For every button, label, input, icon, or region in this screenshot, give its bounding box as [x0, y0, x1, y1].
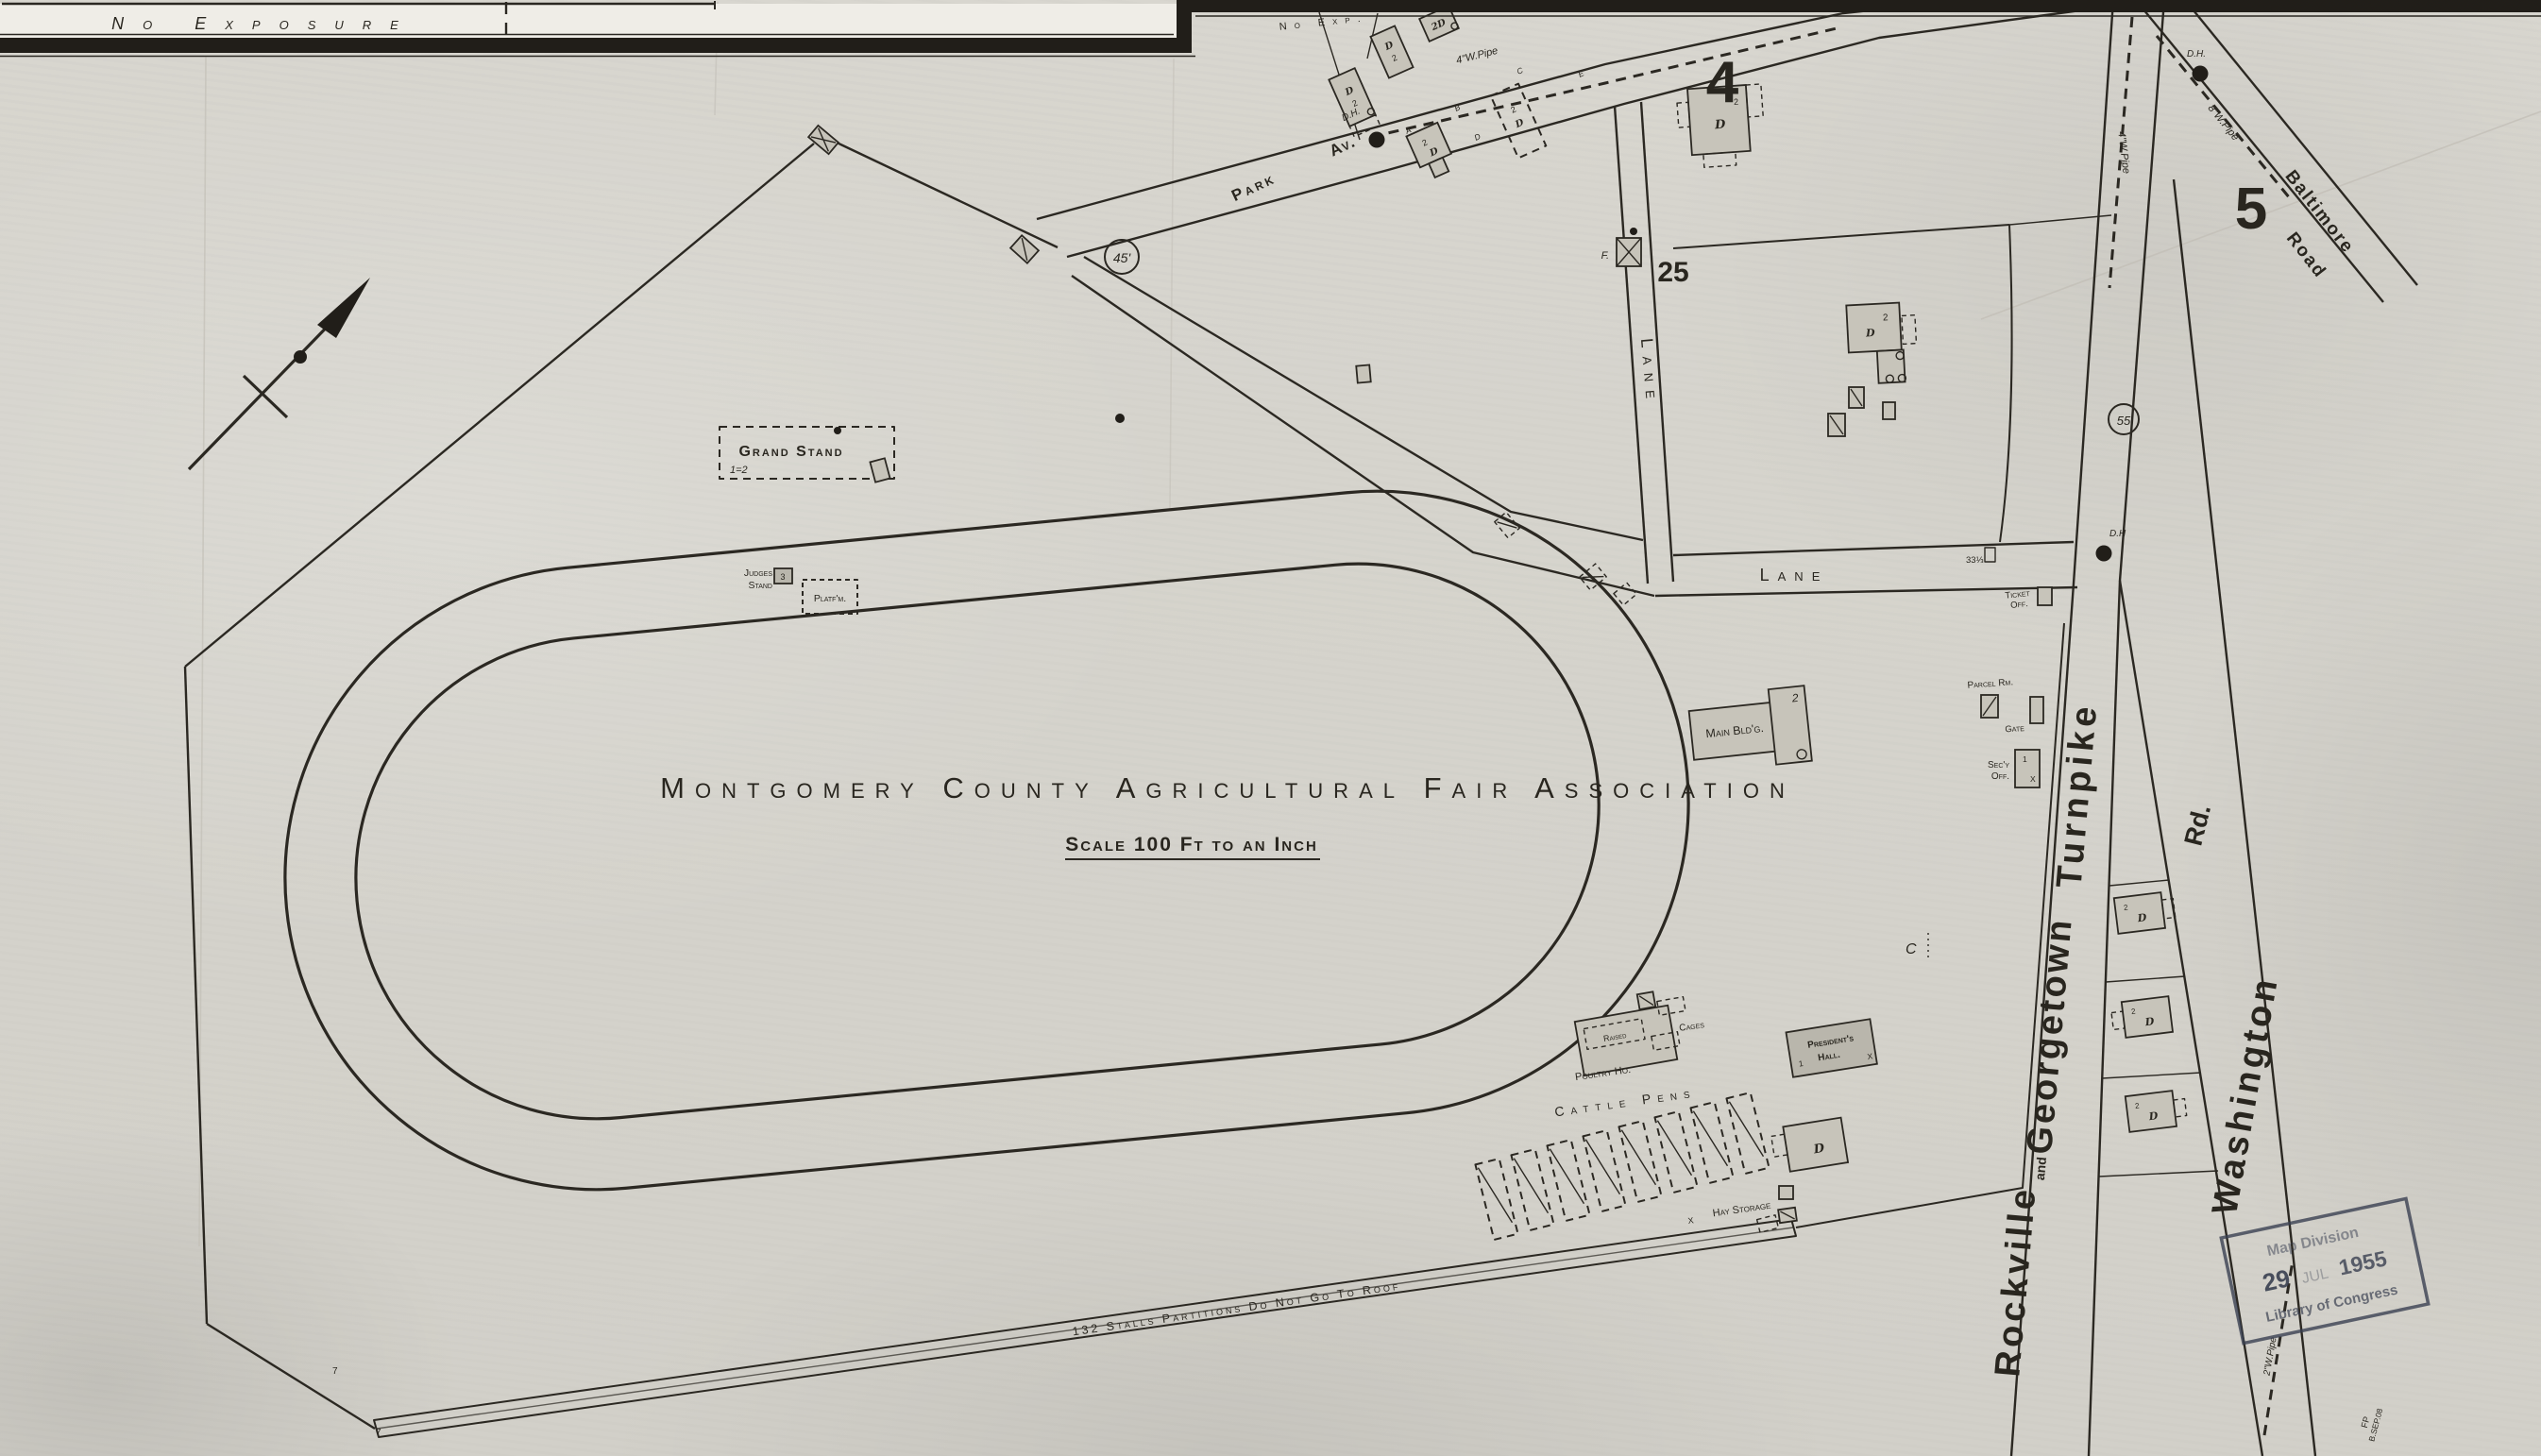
- stall-tick-7b: 7: [376, 1428, 381, 1438]
- street-label-park-av: Av.: [1327, 132, 1358, 160]
- main-building: 2 Main Bld'g.: [1687, 686, 1812, 773]
- entry-road-sheds: [1495, 512, 1636, 604]
- hay-storage-label: Hay Storage: [1712, 1200, 1771, 1220]
- library-stamp: Map Division 29 JUL 1955 Library of Cong…: [2221, 1198, 2428, 1343]
- park-av-south-edge: [1067, 6, 2115, 257]
- fence-apex-shed: [808, 126, 839, 154]
- dh-label-lane: D.H: [2109, 529, 2126, 539]
- f-building: F.: [1601, 228, 1641, 266]
- hydrant-dot-lane: [2096, 546, 2112, 562]
- judges-stand: Judges Stand 3: [744, 567, 792, 591]
- racetrack-outer-oval: [257, 463, 1717, 1218]
- block-number-4: 4: [1706, 50, 1739, 115]
- cattle-pen: [1583, 1130, 1625, 1211]
- stamp-year: 1955: [2337, 1245, 2390, 1279]
- utility-labels: D.H. D.H D.H. 4"W.Pipe 4"W.Pipe 8"W.Pipe…: [1341, 45, 2279, 1378]
- paper-creases: [199, 2, 2541, 1246]
- street-label-washington: Washington: [2205, 973, 2286, 1217]
- grand-stand-note: 1=2: [730, 465, 748, 476]
- water-pipes: [1371, 17, 2293, 1435]
- curb-letter-c: C: [1516, 65, 1526, 76]
- platform: Platf'm.: [803, 580, 857, 614]
- cages-label: Cages: [1679, 1020, 1705, 1034]
- presidents-hall: President's Hall. 1 X: [1786, 1019, 1876, 1076]
- stalls-building: 132 Stalls Partitions Do Not Go To Roof …: [332, 1200, 1797, 1438]
- ticket-office-label-2: Off.: [2010, 599, 2029, 611]
- judges-stand-stories: 3: [780, 572, 785, 582]
- platform-label: Platf'm.: [814, 593, 846, 604]
- parcel-room: Parcel Rm.: [1967, 677, 2013, 718]
- stalls-note: 132 Stalls Partitions Do Not Go To Roof: [1072, 1279, 1401, 1339]
- hydrant-dot-baltimore: [2193, 66, 2209, 82]
- curb-letter-d: D: [1473, 131, 1482, 143]
- stamp-month: JUL: [2300, 1265, 2329, 1287]
- cattle-pen: [1511, 1149, 1553, 1230]
- stories-label: 2: [1883, 313, 1889, 323]
- racetrack: [257, 463, 1717, 1218]
- baltimore-nw-edge: [2143, 9, 2383, 302]
- street-label-park: Park: [1228, 169, 1279, 205]
- secy-office-label-1: Sec'y: [1988, 760, 2009, 770]
- block4-sheds: [1828, 387, 1895, 436]
- cattle-pen: [1726, 1092, 1769, 1174]
- racetrack-inner-oval: [334, 542, 1621, 1141]
- map-canvas: Grand Stand 1=2 X Judges Stand 3 Platf'm…: [0, 0, 2541, 1456]
- cattle-pen: [1690, 1102, 1733, 1183]
- dwelling-label: D: [2143, 1015, 2156, 1028]
- gate-label: Gate: [2005, 723, 2025, 735]
- park-av-houses: D 2 D 2 2D 2 D 2 D: [1329, 6, 1546, 181]
- map-scale-note: Scale 100 Ft to an Inch: [1065, 834, 1318, 855]
- park-av-pipe: [1371, 28, 1837, 137]
- stamp-day: 29: [2260, 1263, 2293, 1296]
- secy-office-x: X: [2030, 774, 2036, 784]
- dwelling-south: D: [1770, 1118, 1848, 1174]
- dwelling-label: D: [1865, 327, 1876, 340]
- secretary-office: Sec'y Off. 1 X: [1988, 750, 2040, 787]
- pipe-label-park: 4"W.Pipe: [1455, 45, 1499, 67]
- secy-office-label-2: Off.: [1991, 771, 2009, 782]
- hay-storage-x: X: [1687, 1215, 1694, 1226]
- ink-blot: [834, 427, 841, 434]
- gate-booth: Gate: [2005, 697, 2043, 735]
- north-arrow: [189, 278, 370, 469]
- grand-stand-label: Grand Stand: [738, 444, 843, 460]
- grand-stand: Grand Stand 1=2 X: [720, 427, 894, 479]
- cattle-pens-label: Cattle Pens: [1553, 1085, 1697, 1120]
- block-numbers: 4 5 25 45' 55: [1105, 50, 2267, 434]
- dwelling-label: D: [1714, 118, 1727, 133]
- trackside-shed: [1356, 364, 1371, 382]
- street-label-baltimore-road: Road: [2282, 229, 2330, 282]
- street-label-washington-rd: Rd.: [2178, 802, 2216, 848]
- route-number-circled: 55: [2117, 414, 2131, 428]
- c-mark: C: [1906, 941, 1917, 957]
- lane-h-north-edge: [1673, 542, 2074, 555]
- judges-stand-label-2: Stand: [748, 580, 772, 591]
- entrance-gate-shed: [1010, 235, 1039, 262]
- block-number-5: 5: [2235, 177, 2267, 242]
- small-shed: [1779, 1186, 1793, 1199]
- street-label-lane-h: Lane: [1760, 566, 1829, 584]
- dwelling-label: D: [2147, 1109, 2160, 1123]
- stall-tick-7a: 7: [332, 1366, 338, 1377]
- secy-office-stories: 1: [2023, 754, 2027, 764]
- dwelling-label: D: [2136, 911, 2148, 924]
- corner-plate-mark: FP B.SEP.08: [2357, 1404, 2385, 1442]
- trackside-shed: [870, 458, 889, 482]
- block4-lower-dwelling: 2 D: [1846, 302, 1918, 385]
- street-label-turnpike: Turnpike: [2050, 701, 2106, 890]
- street-label-rockville: Rockville: [1988, 1184, 2044, 1379]
- cattle-pen: [1618, 1121, 1661, 1202]
- poultry-house: Raised: [1572, 990, 1678, 1075]
- block-number-25: 25: [1657, 257, 1688, 288]
- street-label-and: and: [2032, 1156, 2049, 1180]
- map-title: Montgomery County Agricultural Fair Asso…: [660, 771, 1795, 804]
- ink-blot: [1115, 414, 1125, 423]
- street-label-georgetown: Georgetown: [2020, 916, 2080, 1156]
- hydrant-dot-park: [1369, 132, 1385, 148]
- f-building-label: F.: [1601, 250, 1609, 262]
- cattle-pen: [1654, 1111, 1697, 1193]
- judges-stand-label-1: Judges: [744, 567, 772, 579]
- sanborn-fairgrounds-map: Grand Stand 1=2 X Judges Stand 3 Platf'm…: [0, 0, 2541, 1456]
- pipe-label-turnpike: 4"W.Pipe: [2115, 131, 2131, 175]
- ticket-office: Ticket Off.: [2005, 587, 2052, 611]
- cattle-pen: [1547, 1140, 1589, 1221]
- dwelling-label: D: [1513, 117, 1526, 130]
- cattle-pen: [1475, 1159, 1517, 1240]
- gate-width-circled: 45': [1113, 250, 1132, 265]
- parcel-room-label: Parcel Rm.: [1967, 677, 2013, 690]
- stories-label: 2: [1509, 105, 1517, 115]
- lane-width-note: 33⅓: [1966, 555, 1984, 566]
- no-exposure-banner: No Exposure: [111, 14, 417, 33]
- dh-label-baltimore: D.H.: [2187, 49, 2206, 59]
